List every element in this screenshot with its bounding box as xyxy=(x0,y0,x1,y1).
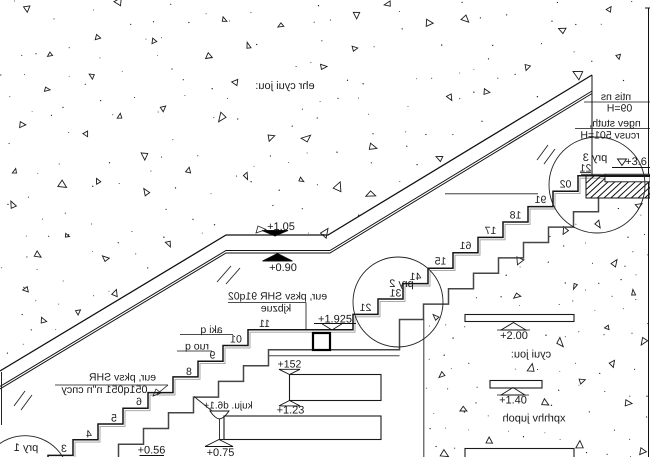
svg-text:8: 8 xyxy=(186,366,192,378)
svg-text:6: 6 xyxy=(136,396,142,408)
svg-text:21: 21 xyxy=(360,302,372,314)
svg-text:4: 4 xyxy=(86,429,92,441)
svg-text:01: 01 xyxy=(230,334,242,346)
svg-text:+2.00: +2.00 xyxy=(500,330,528,342)
svg-text:91: 91 xyxy=(535,194,547,206)
svg-text:ngev stuth,: ngev stuth, xyxy=(589,118,640,130)
svg-text:61: 61 xyxy=(460,240,472,252)
svg-text:+1.40: +1.40 xyxy=(499,395,527,407)
svg-text:pry 1: pry 1 xyxy=(14,442,38,454)
svg-text:eur, pksv SHR 91q02: eur, pksv SHR 91q02 xyxy=(228,291,327,303)
svg-text:+0.90: +0.90 xyxy=(269,262,297,274)
svg-text:eur, pksv SHR: eur, pksv SHR xyxy=(89,372,157,384)
svg-text:ruo q: ruo q xyxy=(185,341,209,353)
svg-text:pry 2: pry 2 xyxy=(389,278,413,290)
svg-text:3: 3 xyxy=(61,443,67,455)
svg-text:21: 21 xyxy=(580,163,592,175)
svg-text:+152: +152 xyxy=(278,359,302,371)
svg-text:+0.75: +0.75 xyxy=(207,447,235,457)
svg-text:5: 5 xyxy=(111,413,117,425)
svg-text:ntis ns: ntis ns xyxy=(601,91,631,103)
svg-text:+0.56: +0.56 xyxy=(138,444,166,456)
svg-text:11: 11 xyxy=(259,318,270,330)
svg-text:051q051 n"n cncy: 051q051 n"n cncy xyxy=(61,384,148,396)
svg-text:cyui jou:: cyui jou: xyxy=(511,349,551,361)
svg-text:17: 17 xyxy=(485,225,497,237)
svg-text:9: 9 xyxy=(209,350,215,362)
svg-text:02: 02 xyxy=(560,179,572,191)
svg-text:kjbzue: kjbzue xyxy=(261,303,292,315)
svg-text:+3.6: +3.6 xyxy=(625,156,647,168)
svg-text:kuju. d6.1+: kuju. d6.1+ xyxy=(203,401,252,412)
svg-text:09=H: 09=H xyxy=(607,103,632,115)
svg-text:rcusv 501=H: rcusv 501=H xyxy=(580,130,639,142)
svg-text:aki q: aki q xyxy=(200,324,222,336)
svg-text:15: 15 xyxy=(435,256,447,268)
svg-text:18: 18 xyxy=(510,209,522,221)
svg-text:xprhhv jupoh: xprhhv jupoh xyxy=(503,413,566,425)
svg-text:+1.05: +1.05 xyxy=(267,221,295,233)
svg-text:+1.23: +1.23 xyxy=(277,404,305,416)
svg-text:ehr cyui jou:: ehr cyui jou: xyxy=(255,80,314,92)
svg-text:+1.925: +1.925 xyxy=(318,314,352,326)
